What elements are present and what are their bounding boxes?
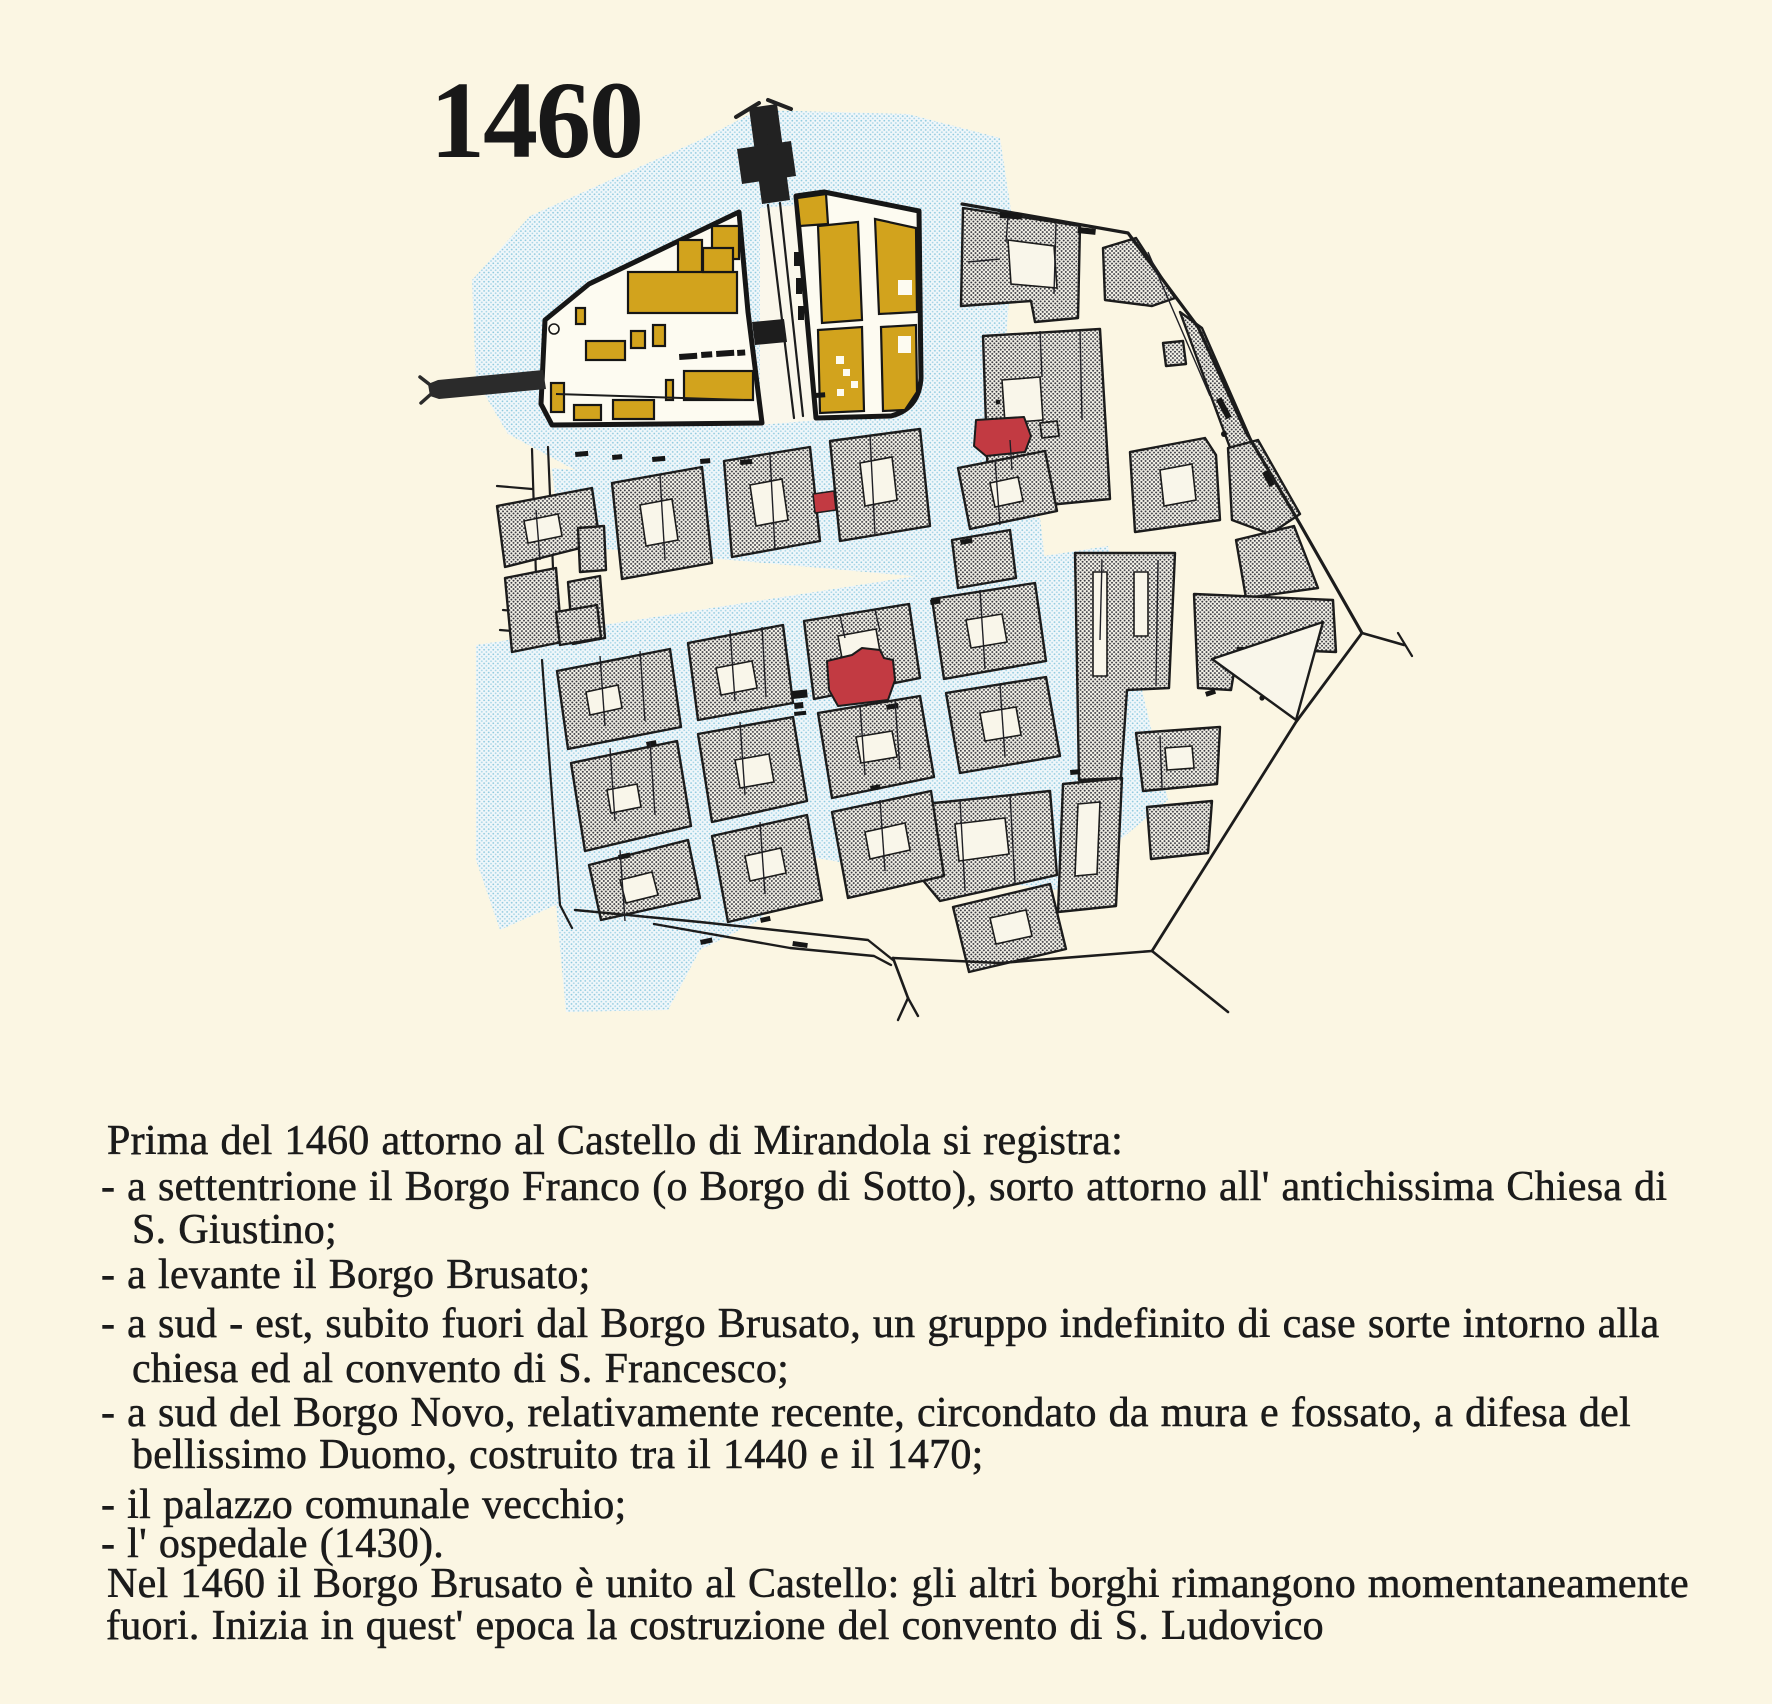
svg-text:Nel 1460 il Borgo Brusato è un: Nel 1460 il Borgo Brusato è unito al Cas… xyxy=(107,1561,1689,1607)
svg-text:- a sud del Borgo Novo, relati: - a sud del Borgo Novo, relativamente re… xyxy=(101,1390,1631,1436)
svg-text:Prima del 1460 attorno al Cast: Prima del 1460 attorno al Castello di Mi… xyxy=(107,1118,1123,1164)
svg-text:- a settentrione il Borgo Fran: - a settentrione il Borgo Franco (o Borg… xyxy=(101,1164,1667,1210)
svg-text:fuori. Inizia in quest' epoca: fuori. Inizia in quest' epoca la costruz… xyxy=(106,1603,1324,1649)
svg-text:bellissimo Duomo, costruito tr: bellissimo Duomo, costruito tra il 1440 … xyxy=(132,1432,984,1478)
svg-text:chiesa ed al convento di S. Fr: chiesa ed al convento di S. Francesco; xyxy=(132,1346,789,1392)
svg-text:1460: 1460 xyxy=(430,59,642,181)
svg-text:- a sud - est, subito fuori da: - a sud - est, subito fuori dal Borgo Br… xyxy=(101,1301,1659,1347)
svg-text:- a levante il Borgo Brusato;: - a levante il Borgo Brusato; xyxy=(101,1252,591,1298)
svg-text:S. Giustino;: S. Giustino; xyxy=(132,1207,337,1253)
